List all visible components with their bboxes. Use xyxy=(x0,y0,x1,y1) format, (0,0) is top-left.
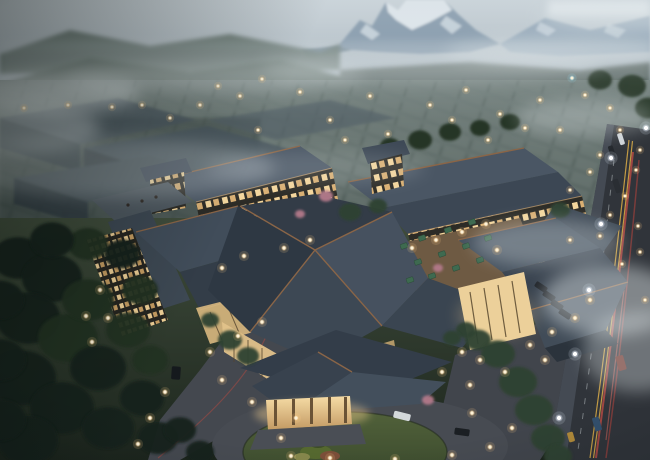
rendering-canvas xyxy=(0,0,650,460)
architectural-rendering xyxy=(0,0,650,460)
lit-entry-wall xyxy=(266,396,352,430)
